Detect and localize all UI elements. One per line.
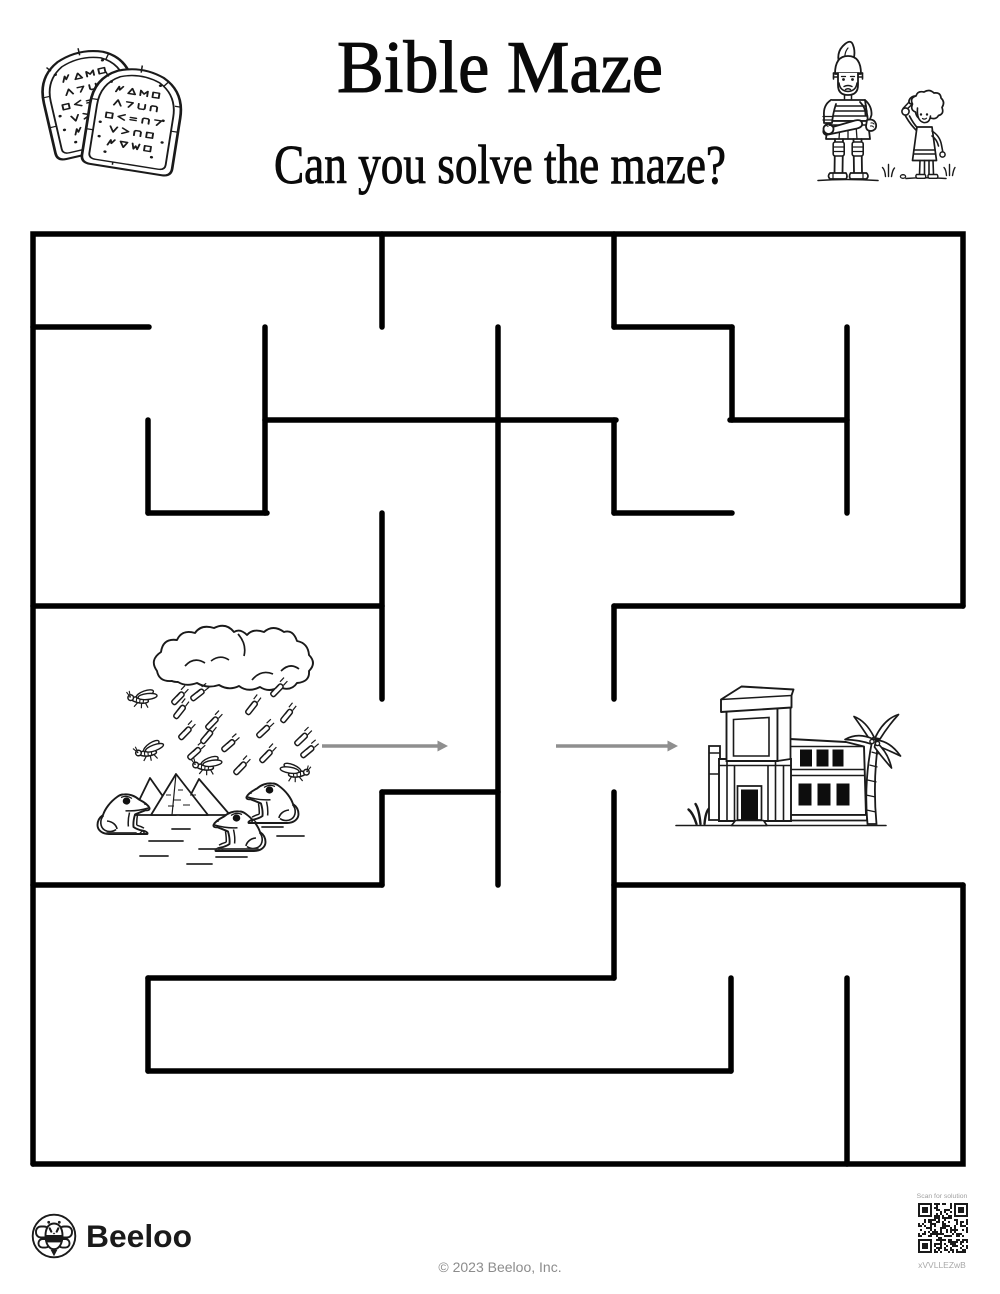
svg-text:Beeloo: Beeloo bbox=[86, 1218, 192, 1254]
svg-text:Bible Maze: Bible Maze bbox=[337, 27, 663, 109]
svg-text:© 2023 Beeloo, Inc.: © 2023 Beeloo, Inc. bbox=[438, 1259, 561, 1275]
svg-text:Can you solve the maze?: Can you solve the maze? bbox=[274, 134, 726, 195]
svg-text:xVVLLEZwB: xVVLLEZwB bbox=[918, 1260, 966, 1270]
svg-text:Scan for solution: Scan for solution bbox=[917, 1193, 968, 1200]
